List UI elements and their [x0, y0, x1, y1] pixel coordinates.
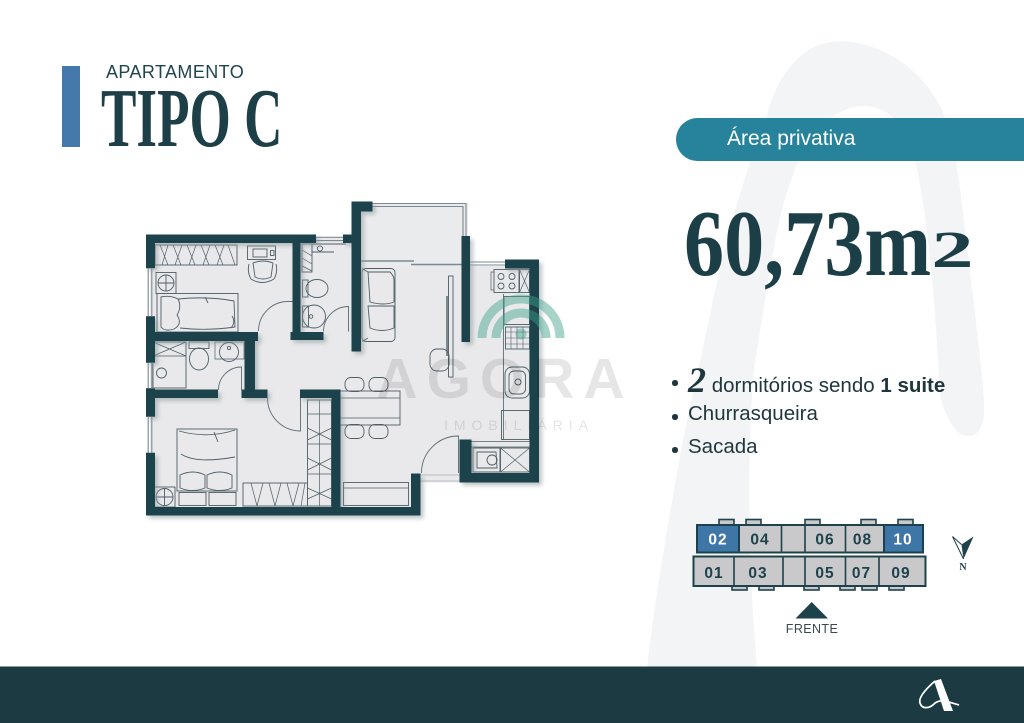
- svg-text:01: 01: [704, 565, 723, 582]
- svg-text:07: 07: [852, 565, 871, 582]
- svg-text:03: 03: [748, 565, 767, 582]
- svg-text:08: 08: [853, 532, 872, 549]
- svg-text:02: 02: [708, 532, 727, 549]
- svg-text:06: 06: [815, 532, 834, 549]
- svg-text:N: N: [959, 562, 967, 573]
- svg-text:AGORA: AGORA: [376, 347, 633, 411]
- svg-text:05: 05: [815, 565, 834, 582]
- svg-text:10: 10: [893, 532, 912, 549]
- svg-text:IMOBILIÁRIA: IMOBILIÁRIA: [444, 417, 594, 433]
- svg-text:09: 09: [891, 565, 910, 582]
- svg-text:04: 04: [750, 532, 769, 549]
